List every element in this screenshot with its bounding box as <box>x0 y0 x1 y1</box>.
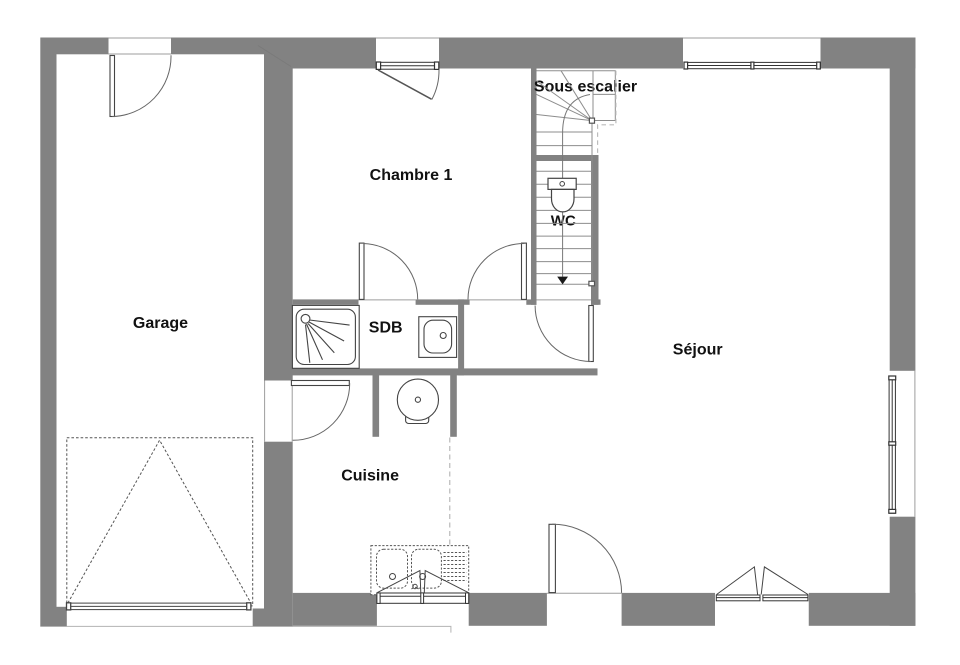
svg-text:SDB: SDB <box>369 320 403 337</box>
svg-text:Séjour: Séjour <box>673 342 723 359</box>
svg-text:Chambre 1: Chambre 1 <box>370 167 453 184</box>
svg-text:Cuisine: Cuisine <box>341 468 399 485</box>
svg-text:Garage: Garage <box>133 315 188 332</box>
svg-text:WC: WC <box>551 213 576 230</box>
svg-text:Sous escalier: Sous escalier <box>534 79 637 96</box>
